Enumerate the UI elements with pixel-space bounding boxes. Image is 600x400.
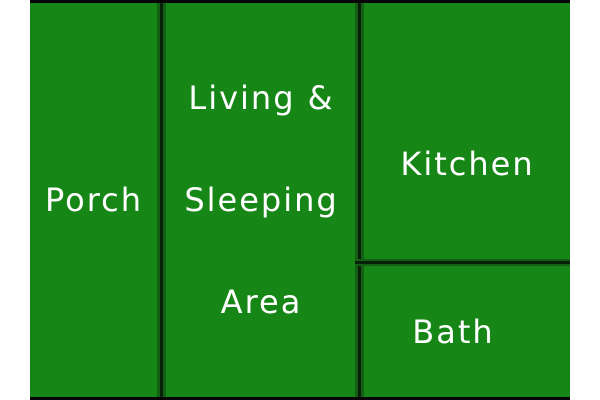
- room-label-line-2: Sleeping: [184, 183, 338, 217]
- floorplan: Porch Living & Sleeping Area Kitchen Bat…: [0, 0, 600, 400]
- room-label-line-1: Living &: [184, 81, 338, 115]
- room-bath: Bath: [365, 266, 570, 397]
- room-label-living-sleeping-area: Living & Sleeping Area: [184, 13, 338, 387]
- wall-kitchen-bath: [355, 259, 570, 266]
- room-label-kitchen: Kitchen: [400, 147, 534, 181]
- room-kitchen: Kitchen: [365, 3, 570, 259]
- right-margin: [570, 0, 600, 400]
- room-living-sleeping-area: Living & Sleeping Area: [167, 3, 356, 397]
- room-label-line-3: Area: [184, 285, 338, 319]
- room-label-porch: Porch: [45, 183, 143, 217]
- floorplan-outline: Porch Living & Sleeping Area Kitchen Bat…: [30, 0, 570, 400]
- left-margin: [0, 0, 30, 400]
- room-label-bath: Bath: [412, 315, 494, 349]
- room-porch: Porch: [30, 3, 158, 397]
- wall-living-kitchen: [355, 3, 364, 397]
- wall-porch-living: [157, 3, 166, 397]
